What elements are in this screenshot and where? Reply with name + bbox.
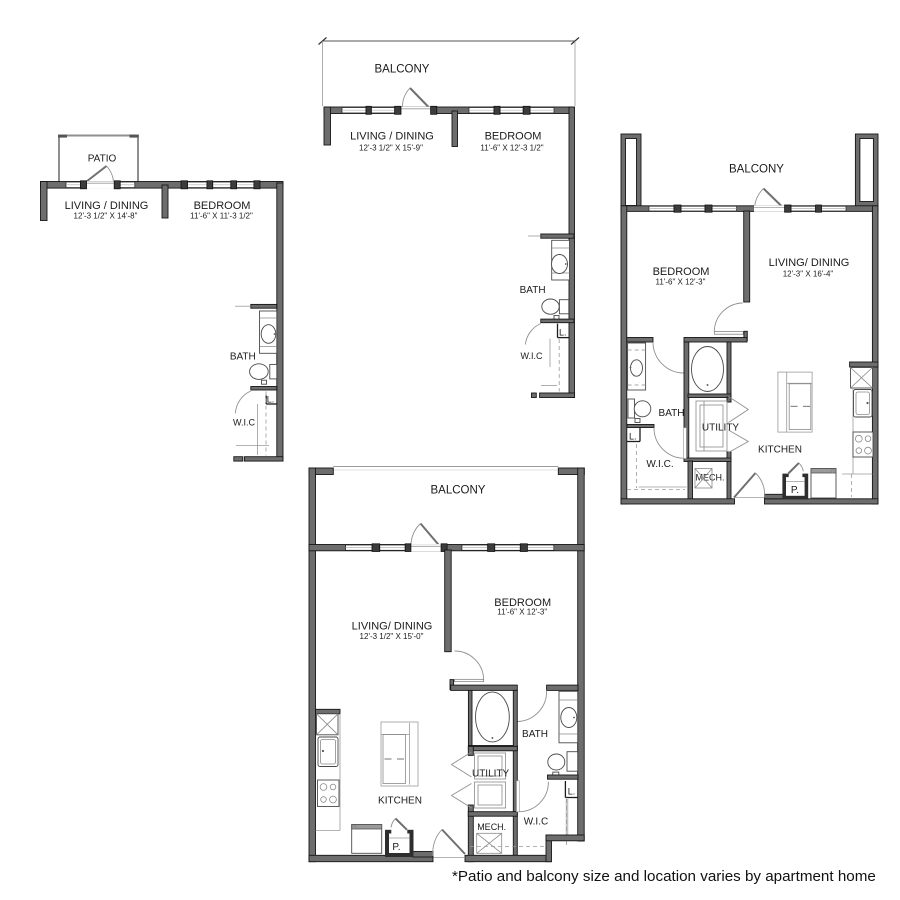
svg-text:BATH: BATH (522, 729, 548, 740)
svg-text:W.I.C.: W.I.C. (646, 459, 673, 470)
svg-text:W.I.C: W.I.C (521, 351, 543, 361)
svg-text:BATH: BATH (520, 285, 546, 296)
svg-text:BALCONY: BALCONY (375, 64, 430, 76)
svg-text:W.I.C: W.I.C (524, 817, 548, 828)
svg-text:BEDROOM: BEDROOM (194, 200, 251, 212)
svg-text:P.: P. (791, 485, 799, 496)
svg-text:UTILITY: UTILITY (702, 423, 740, 434)
svg-text:11'-6" X 12'-3": 11'-6" X 12'-3" (497, 608, 547, 617)
svg-text:MECH.: MECH. (477, 822, 506, 832)
svg-text:KITCHEN: KITCHEN (378, 796, 422, 807)
svg-text:L.: L. (559, 328, 567, 338)
svg-text:PATIO: PATIO (88, 154, 117, 165)
svg-text:L.: L. (267, 395, 275, 405)
svg-text:12'-3 1/2" X 15'-0": 12'-3 1/2" X 15'-0" (360, 632, 424, 641)
svg-text:L.: L. (568, 787, 576, 797)
svg-text:BATH: BATH (230, 352, 256, 363)
svg-text:12'-3" X 16'-4": 12'-3" X 16'-4" (783, 270, 834, 279)
svg-text:11'-6" X 11'-3 1/2": 11'-6" X 11'-3 1/2" (190, 212, 253, 221)
svg-text:12'-3 1/2" X 14'-8": 12'-3 1/2" X 14'-8" (74, 212, 138, 221)
svg-text:P.: P. (392, 842, 400, 853)
svg-text:12'-3 1/2" X 15'-9": 12'-3 1/2" X 15'-9" (359, 144, 423, 153)
svg-text:11'-6" X 12'-3": 11'-6" X 12'-3" (656, 278, 706, 287)
svg-text:LIVING/ DINING: LIVING/ DINING (352, 621, 433, 633)
svg-text:*Patio and balcony size and lo: *Patio and balcony size and location var… (452, 868, 876, 885)
svg-text:W.I.C: W.I.C (233, 418, 255, 428)
svg-text:UTILITY: UTILITY (472, 769, 510, 780)
svg-text:KITCHEN: KITCHEN (758, 444, 802, 455)
svg-text:LIVING/ DINING: LIVING/ DINING (769, 257, 850, 269)
svg-text:BALCONY: BALCONY (431, 485, 486, 497)
svg-text:BALCONY: BALCONY (729, 164, 784, 176)
svg-text:LIVING / DINING: LIVING / DINING (350, 131, 434, 143)
svg-text:L.: L. (629, 432, 637, 442)
svg-text:11'-6" X 12'-3 1/2": 11'-6" X 12'-3 1/2" (480, 144, 543, 153)
svg-text:BATH: BATH (659, 408, 685, 419)
svg-text:BEDROOM: BEDROOM (485, 131, 542, 143)
svg-text:BEDROOM: BEDROOM (653, 266, 710, 278)
svg-text:LIVING / DINING: LIVING / DINING (65, 200, 149, 212)
